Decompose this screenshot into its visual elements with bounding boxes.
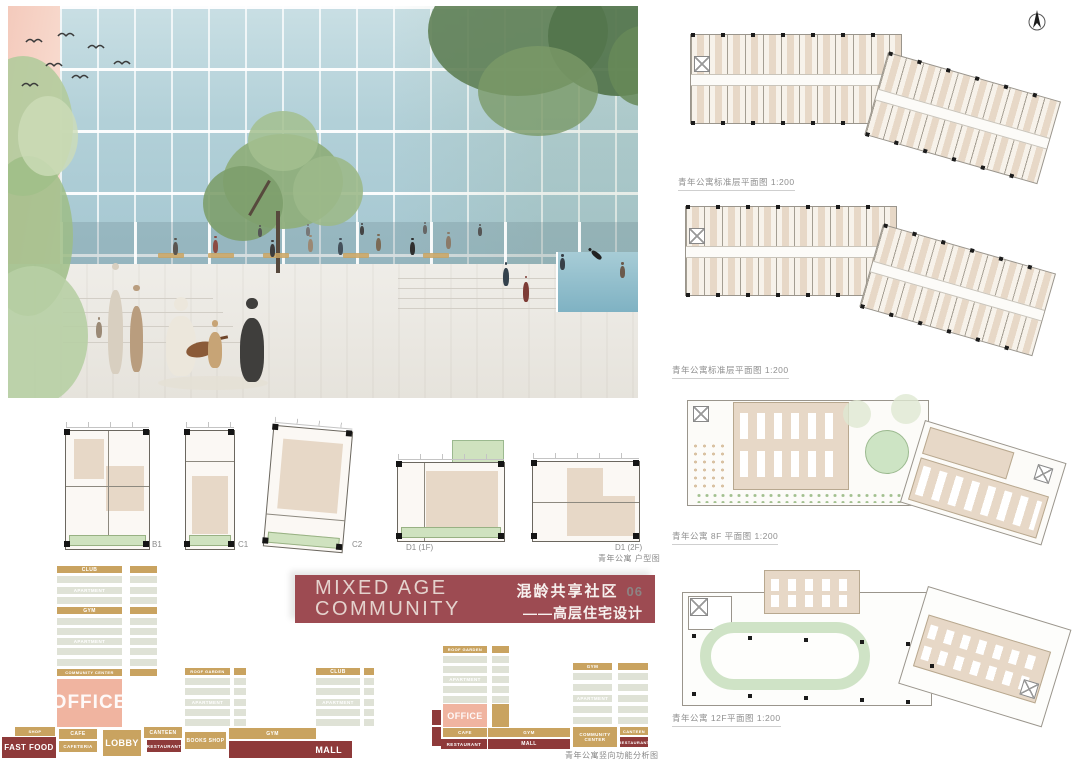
program-bar	[316, 678, 360, 685]
program-bar-lobby: LOBBY	[103, 730, 141, 756]
column-dots	[692, 634, 696, 638]
program-bar-apartment: APARTMENT	[57, 638, 122, 645]
person-figure	[338, 242, 343, 255]
program-bar	[618, 717, 648, 724]
person-figure	[423, 225, 427, 234]
unit-label: D1 (2F)	[615, 543, 642, 552]
person-figure	[376, 238, 381, 251]
program-bar-cafe: CAFE	[59, 729, 97, 739]
unit-label: B1	[152, 540, 162, 549]
program-bar	[185, 719, 230, 726]
program-bar	[492, 696, 509, 703]
person-figure	[130, 306, 143, 372]
program-bar	[492, 646, 509, 653]
program-bar-restaurant: RESTAURANT	[620, 737, 648, 747]
plan-caption: 青年公寓 8F 平面图 1:200	[672, 530, 778, 545]
program-bar	[234, 709, 246, 716]
mezzanine-strip	[60, 222, 638, 267]
program-bar	[492, 656, 509, 663]
program-bar	[443, 666, 487, 673]
program-bar	[443, 656, 487, 663]
roof-terrace	[452, 440, 504, 464]
program-bar	[57, 597, 122, 604]
program-bar-club: CLUB	[57, 566, 122, 573]
program-bar-mall: MALL	[488, 739, 570, 749]
person-figure	[560, 258, 565, 270]
unit-plan-c1	[185, 430, 235, 550]
program-bar-cafe: CAFE	[443, 728, 487, 737]
plaza-ground	[8, 264, 638, 398]
program-bar-shop: SHOP	[15, 727, 55, 736]
person-figure	[258, 228, 262, 237]
lounge-seating	[691, 442, 729, 490]
program-bar	[130, 648, 157, 655]
person-figure	[523, 282, 529, 302]
tree-canopy	[203, 166, 283, 241]
program-bar	[618, 706, 648, 713]
program-bar-fast-food: FAST FOOD	[2, 737, 56, 758]
program-bar	[130, 597, 157, 604]
program-bar-roof-garden: ROOF GARDEN	[443, 646, 487, 653]
step-line	[63, 298, 213, 299]
program-block-office: OFFICE	[57, 679, 122, 727]
program-bar-club: CLUB	[316, 668, 360, 675]
green-courtyard	[865, 430, 909, 474]
floor-plan-standard-2	[683, 192, 1075, 360]
program-bar	[130, 659, 157, 666]
person-figure	[96, 322, 102, 338]
program-bar	[432, 710, 441, 725]
program-bar	[316, 709, 360, 716]
program-bar	[57, 659, 122, 666]
program-bar	[316, 719, 360, 726]
plan-caption: 青年公寓标准层平面图 1:200	[672, 364, 789, 379]
bench	[263, 253, 289, 258]
elevator-icon	[689, 228, 705, 244]
sheet-number: 06	[627, 584, 643, 599]
program-bar	[130, 638, 157, 645]
presentation-board: 青年公寓标准层平面图 1:200 青年公寓标准层平面图 1:200	[0, 0, 1080, 763]
bench	[423, 253, 449, 258]
program-bar	[618, 663, 648, 670]
program-bar	[130, 669, 157, 676]
birds-icon	[18, 28, 158, 108]
program-bar-roof-garden: ROOF GARDEN	[185, 668, 230, 675]
program-bar	[573, 684, 612, 691]
title-cn-main: 混龄共享社区	[517, 583, 619, 600]
program-bar	[57, 576, 122, 583]
person-figure	[173, 242, 178, 255]
person-figure	[108, 290, 123, 374]
person-figure	[208, 332, 222, 368]
program-block-community-center: COMMUNITY CENTER	[573, 727, 617, 747]
title-chinese: 混龄共享社区06 ——高层住宅设计	[517, 580, 643, 623]
program-bar-apartment: APARTMENT	[316, 699, 360, 706]
program-bar	[432, 727, 441, 746]
person-figure	[240, 318, 264, 382]
elevator-icon	[693, 406, 709, 422]
person-figure	[270, 244, 275, 257]
unit-plans-caption: 青年公寓 户型图	[598, 553, 660, 564]
program-bar	[492, 704, 509, 727]
program-bar	[130, 587, 157, 594]
bench	[343, 253, 369, 258]
step-line	[63, 312, 223, 313]
unit-plan-b1	[65, 430, 150, 550]
elevator-icon	[690, 598, 708, 616]
person-figure	[308, 239, 313, 252]
elevator-icon	[694, 56, 710, 72]
program-bar-cafeteria: CAFETERIA	[59, 741, 97, 752]
unit-plan-d1-2f	[532, 461, 640, 542]
program-bar-apartment: APARTMENT	[573, 695, 612, 702]
program-bar	[618, 684, 648, 691]
tree-canopy	[248, 111, 318, 171]
program-bar	[234, 678, 246, 685]
program-bar	[185, 688, 230, 695]
floor-plan-standard-1	[688, 22, 1080, 182]
tree-trunk	[276, 211, 280, 273]
floor-plan-8f	[683, 390, 1065, 530]
person-figure	[503, 268, 509, 286]
program-bar	[618, 695, 648, 702]
bench	[158, 253, 184, 258]
title-block: MIXED AGE COMMUNITY 混龄共享社区06 ——高层住宅设计	[295, 575, 655, 623]
program-bar	[573, 717, 612, 724]
program-bar	[443, 696, 487, 703]
planting	[891, 394, 921, 424]
planting	[843, 400, 871, 428]
program-bar-books-shop: BOOKS SHOP	[185, 732, 226, 749]
program-bar-gym: GYM	[573, 663, 612, 670]
person-figure	[306, 227, 310, 236]
water-pool	[556, 252, 638, 312]
program-bar-canteen: CANTEEN	[144, 727, 182, 738]
program-bar-gym: GYM	[229, 728, 316, 739]
program-bar	[234, 699, 246, 706]
floor-plan-12f	[678, 566, 1065, 712]
dining-hall	[733, 402, 849, 490]
program-bar	[364, 709, 374, 716]
program-bar-community-center: COMMUNITY CENTER	[57, 669, 122, 676]
tree-canopy	[293, 156, 363, 226]
program-bar	[364, 688, 374, 695]
program-bar	[234, 668, 246, 675]
program-bar	[443, 686, 487, 693]
program-bar	[234, 688, 246, 695]
program-bar	[130, 618, 157, 625]
program-bar	[364, 699, 374, 706]
running-track	[700, 622, 870, 690]
plan-caption: 青年公寓标准层平面图 1:200	[678, 176, 795, 191]
unit-label: C2	[352, 540, 362, 549]
hero-rendering	[8, 6, 638, 398]
program-bar	[185, 709, 230, 716]
person-figure	[620, 266, 625, 278]
foliage	[18, 96, 78, 176]
program-bar	[316, 688, 360, 695]
program-bar-apartment: APARTMENT	[57, 587, 122, 594]
step-line	[398, 278, 568, 279]
program-caption: 青年公寓竖向功能分析图	[565, 750, 659, 761]
step-line	[398, 298, 578, 299]
elevator-icon	[1033, 464, 1053, 484]
program-bar-apartment: APARTMENT	[185, 699, 230, 706]
bench	[208, 253, 234, 258]
unit-label: C1	[238, 540, 248, 549]
program-bar-apartment: APARTMENT	[443, 676, 487, 683]
program-bar	[130, 576, 157, 583]
program-bar-mall: MALL	[229, 741, 352, 758]
program-bar	[492, 666, 509, 673]
person-figure	[360, 226, 364, 235]
person-figure	[410, 242, 415, 255]
title-english: MIXED AGE COMMUNITY	[315, 578, 461, 620]
program-bar	[130, 607, 157, 614]
title-en-line1: MIXED AGE	[315, 578, 461, 599]
unit-plan-d1-1f	[397, 462, 505, 542]
program-bar	[618, 673, 648, 680]
title-cn-subtitle: ——高层住宅设计	[517, 603, 643, 623]
program-bar	[57, 618, 122, 625]
roof-wing	[898, 586, 1071, 727]
program-bar	[492, 676, 509, 683]
program-bar	[234, 719, 246, 726]
program-bar	[185, 678, 230, 685]
person-figure	[213, 240, 218, 253]
program-bar	[364, 719, 374, 726]
unit-plan-c2	[263, 425, 353, 554]
program-bar	[130, 628, 157, 635]
program-block-office: OFFICE	[443, 704, 487, 727]
program-bar	[57, 628, 122, 635]
study-room	[764, 570, 860, 614]
gym-wing	[900, 420, 1067, 546]
step-line	[398, 288, 573, 289]
step-line	[63, 326, 233, 327]
program-bar	[57, 648, 122, 655]
program-bar-restaurant: RESTAURANT	[147, 740, 181, 752]
program-bar-gym: GYM	[488, 728, 570, 737]
program-bar	[364, 678, 374, 685]
program-bar-canteen: CANTEEN	[620, 727, 648, 735]
program-bar	[130, 566, 157, 573]
program-bar	[364, 668, 374, 675]
program-bar	[492, 686, 509, 693]
person-figure	[446, 236, 451, 249]
program-bar-restaurant: RESTAURANT	[441, 739, 487, 749]
planting-strip	[695, 492, 920, 503]
unit-label: D1 (1F)	[406, 543, 433, 552]
program-bar-gym: GYM	[57, 607, 122, 614]
foliage	[478, 46, 598, 136]
program-bar	[573, 706, 612, 713]
program-bar	[573, 673, 612, 680]
person-figure	[478, 227, 482, 236]
title-en-line2: COMMUNITY	[315, 599, 461, 620]
plan-caption: 青年公寓 12F平面图 1:200	[672, 712, 781, 727]
